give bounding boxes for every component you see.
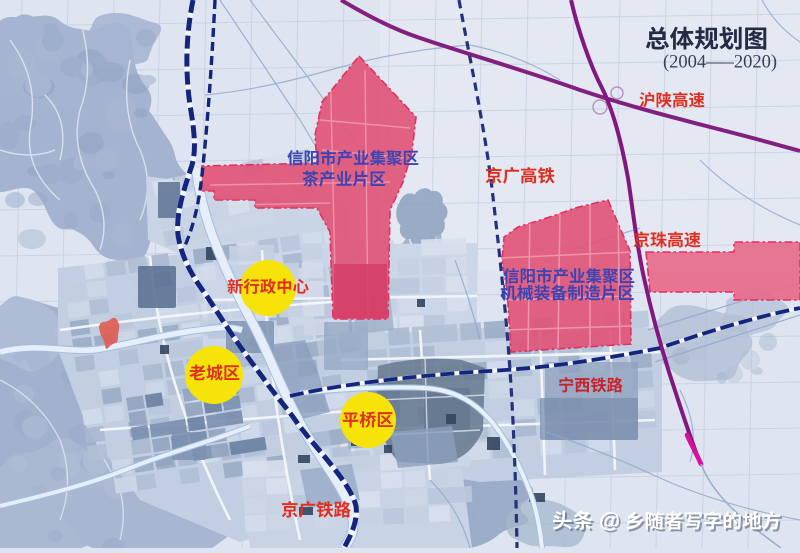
svg-text:@: @ [599, 509, 620, 533]
svg-text:(2004—–2020): (2004—–2020) [663, 52, 777, 73]
